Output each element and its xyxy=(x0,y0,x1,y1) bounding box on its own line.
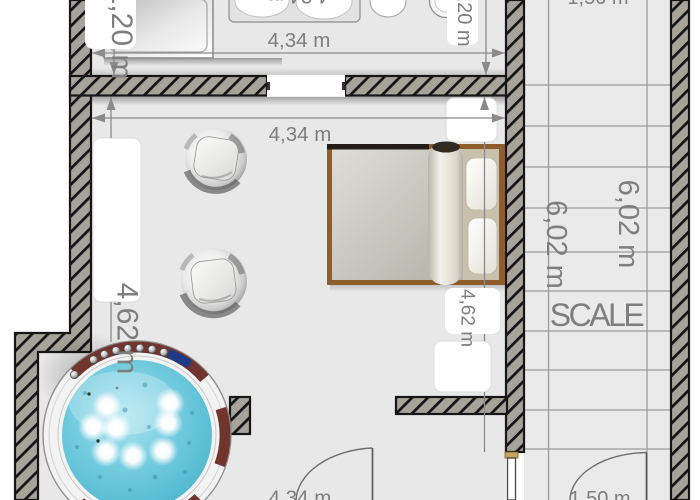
svg-text:4,34 m: 4,34 m xyxy=(267,0,330,8)
svg-text:4,62 m: 4,62 m xyxy=(111,283,144,375)
svg-text:4,34 m: 4,34 m xyxy=(269,487,332,500)
svg-text:1,20 m: 1,20 m xyxy=(105,0,138,79)
svg-text:SCALE: SCALE xyxy=(550,297,644,333)
svg-text:4,62 m: 4,62 m xyxy=(457,289,478,347)
svg-text:1,50 m: 1,50 m xyxy=(569,488,630,500)
svg-text:4,34 m: 4,34 m xyxy=(269,123,332,146)
svg-text:6,02 m: 6,02 m xyxy=(540,200,572,289)
svg-text:1,20 m: 1,20 m xyxy=(453,0,475,47)
svg-text:4,34 m: 4,34 m xyxy=(268,29,331,52)
svg-text:6,02 m: 6,02 m xyxy=(612,180,644,269)
svg-text:1,50 m: 1,50 m xyxy=(567,0,628,9)
